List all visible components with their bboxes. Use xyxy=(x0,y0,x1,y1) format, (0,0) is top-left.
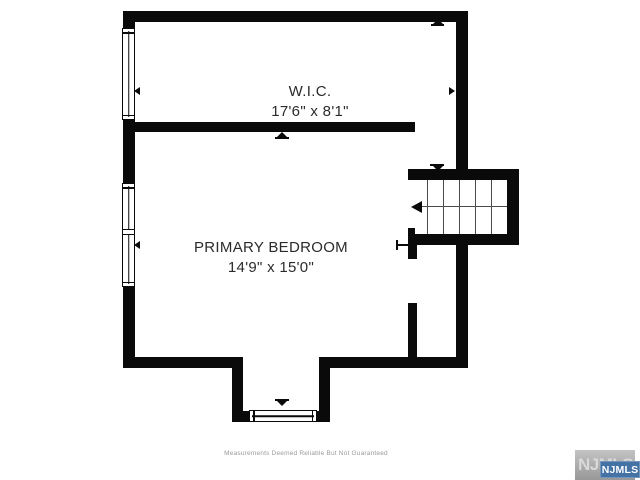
wall-wic-bottom xyxy=(123,122,415,132)
wic-room-dimensions: 17'6" x 8'1" xyxy=(160,102,460,122)
bay-wall-left xyxy=(232,357,243,422)
bay-window-marker-icon xyxy=(277,401,287,406)
primary-bedroom-label: PRIMARY BEDROOM 14'9" x 15'0" xyxy=(121,238,421,278)
primary-bedroom-room-name: PRIMARY BEDROOM xyxy=(121,238,421,258)
bay-window xyxy=(249,410,317,422)
wall-bottom-left xyxy=(123,357,243,368)
wic-window xyxy=(122,28,135,120)
primary-bedroom-room-dimensions: 14'9" x 15'0" xyxy=(121,258,421,278)
floorplan-image: W.I.C. 17'6" x 8'1" PRIMARY BEDROOM 14'9… xyxy=(0,0,640,480)
wic-room-name: W.I.C. xyxy=(160,82,460,102)
wic-window-marker-icon xyxy=(134,87,140,95)
stair-direction-arrow-icon xyxy=(411,201,422,213)
stair-top-marker-icon xyxy=(433,166,443,171)
stair-wall-bottom xyxy=(408,234,519,245)
staircase xyxy=(415,180,507,234)
top-wall-marker-bar xyxy=(431,24,444,26)
wall-top xyxy=(123,11,468,22)
wall-bedroom-right-lower xyxy=(408,303,417,368)
wall-right-lower xyxy=(456,234,468,368)
stair-wall-top xyxy=(408,169,519,180)
njmls-badge-text: NJMLS xyxy=(602,464,639,476)
wic-bottom-wall-marker-bar xyxy=(275,137,289,139)
disclaimer-text: Measurements Deemed Reliable But Not Gua… xyxy=(0,450,612,457)
njmls-badge-logo: NJMLS xyxy=(600,461,640,478)
bay-wall-right xyxy=(319,357,330,422)
wall-bottom-right xyxy=(319,357,468,368)
wic-label: W.I.C. 17'6" x 8'1" xyxy=(160,82,460,122)
